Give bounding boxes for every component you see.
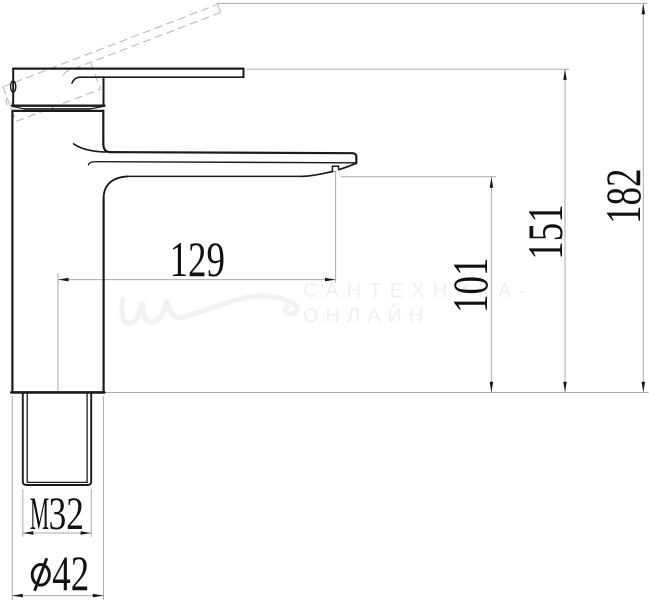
svg-text:101: 101 bbox=[443, 258, 499, 313]
svg-text:САНТЕХНИКА-: САНТЕХНИКА- bbox=[303, 280, 534, 302]
svg-text:M: M bbox=[30, 486, 49, 539]
svg-text:42: 42 bbox=[52, 546, 89, 600]
svg-text:182: 182 bbox=[595, 169, 649, 224]
svg-text:ОНЛАЙН: ОНЛАЙН bbox=[303, 303, 430, 327]
svg-text:129: 129 bbox=[170, 232, 225, 288]
svg-text:32: 32 bbox=[49, 487, 84, 539]
svg-text:151: 151 bbox=[518, 204, 574, 259]
